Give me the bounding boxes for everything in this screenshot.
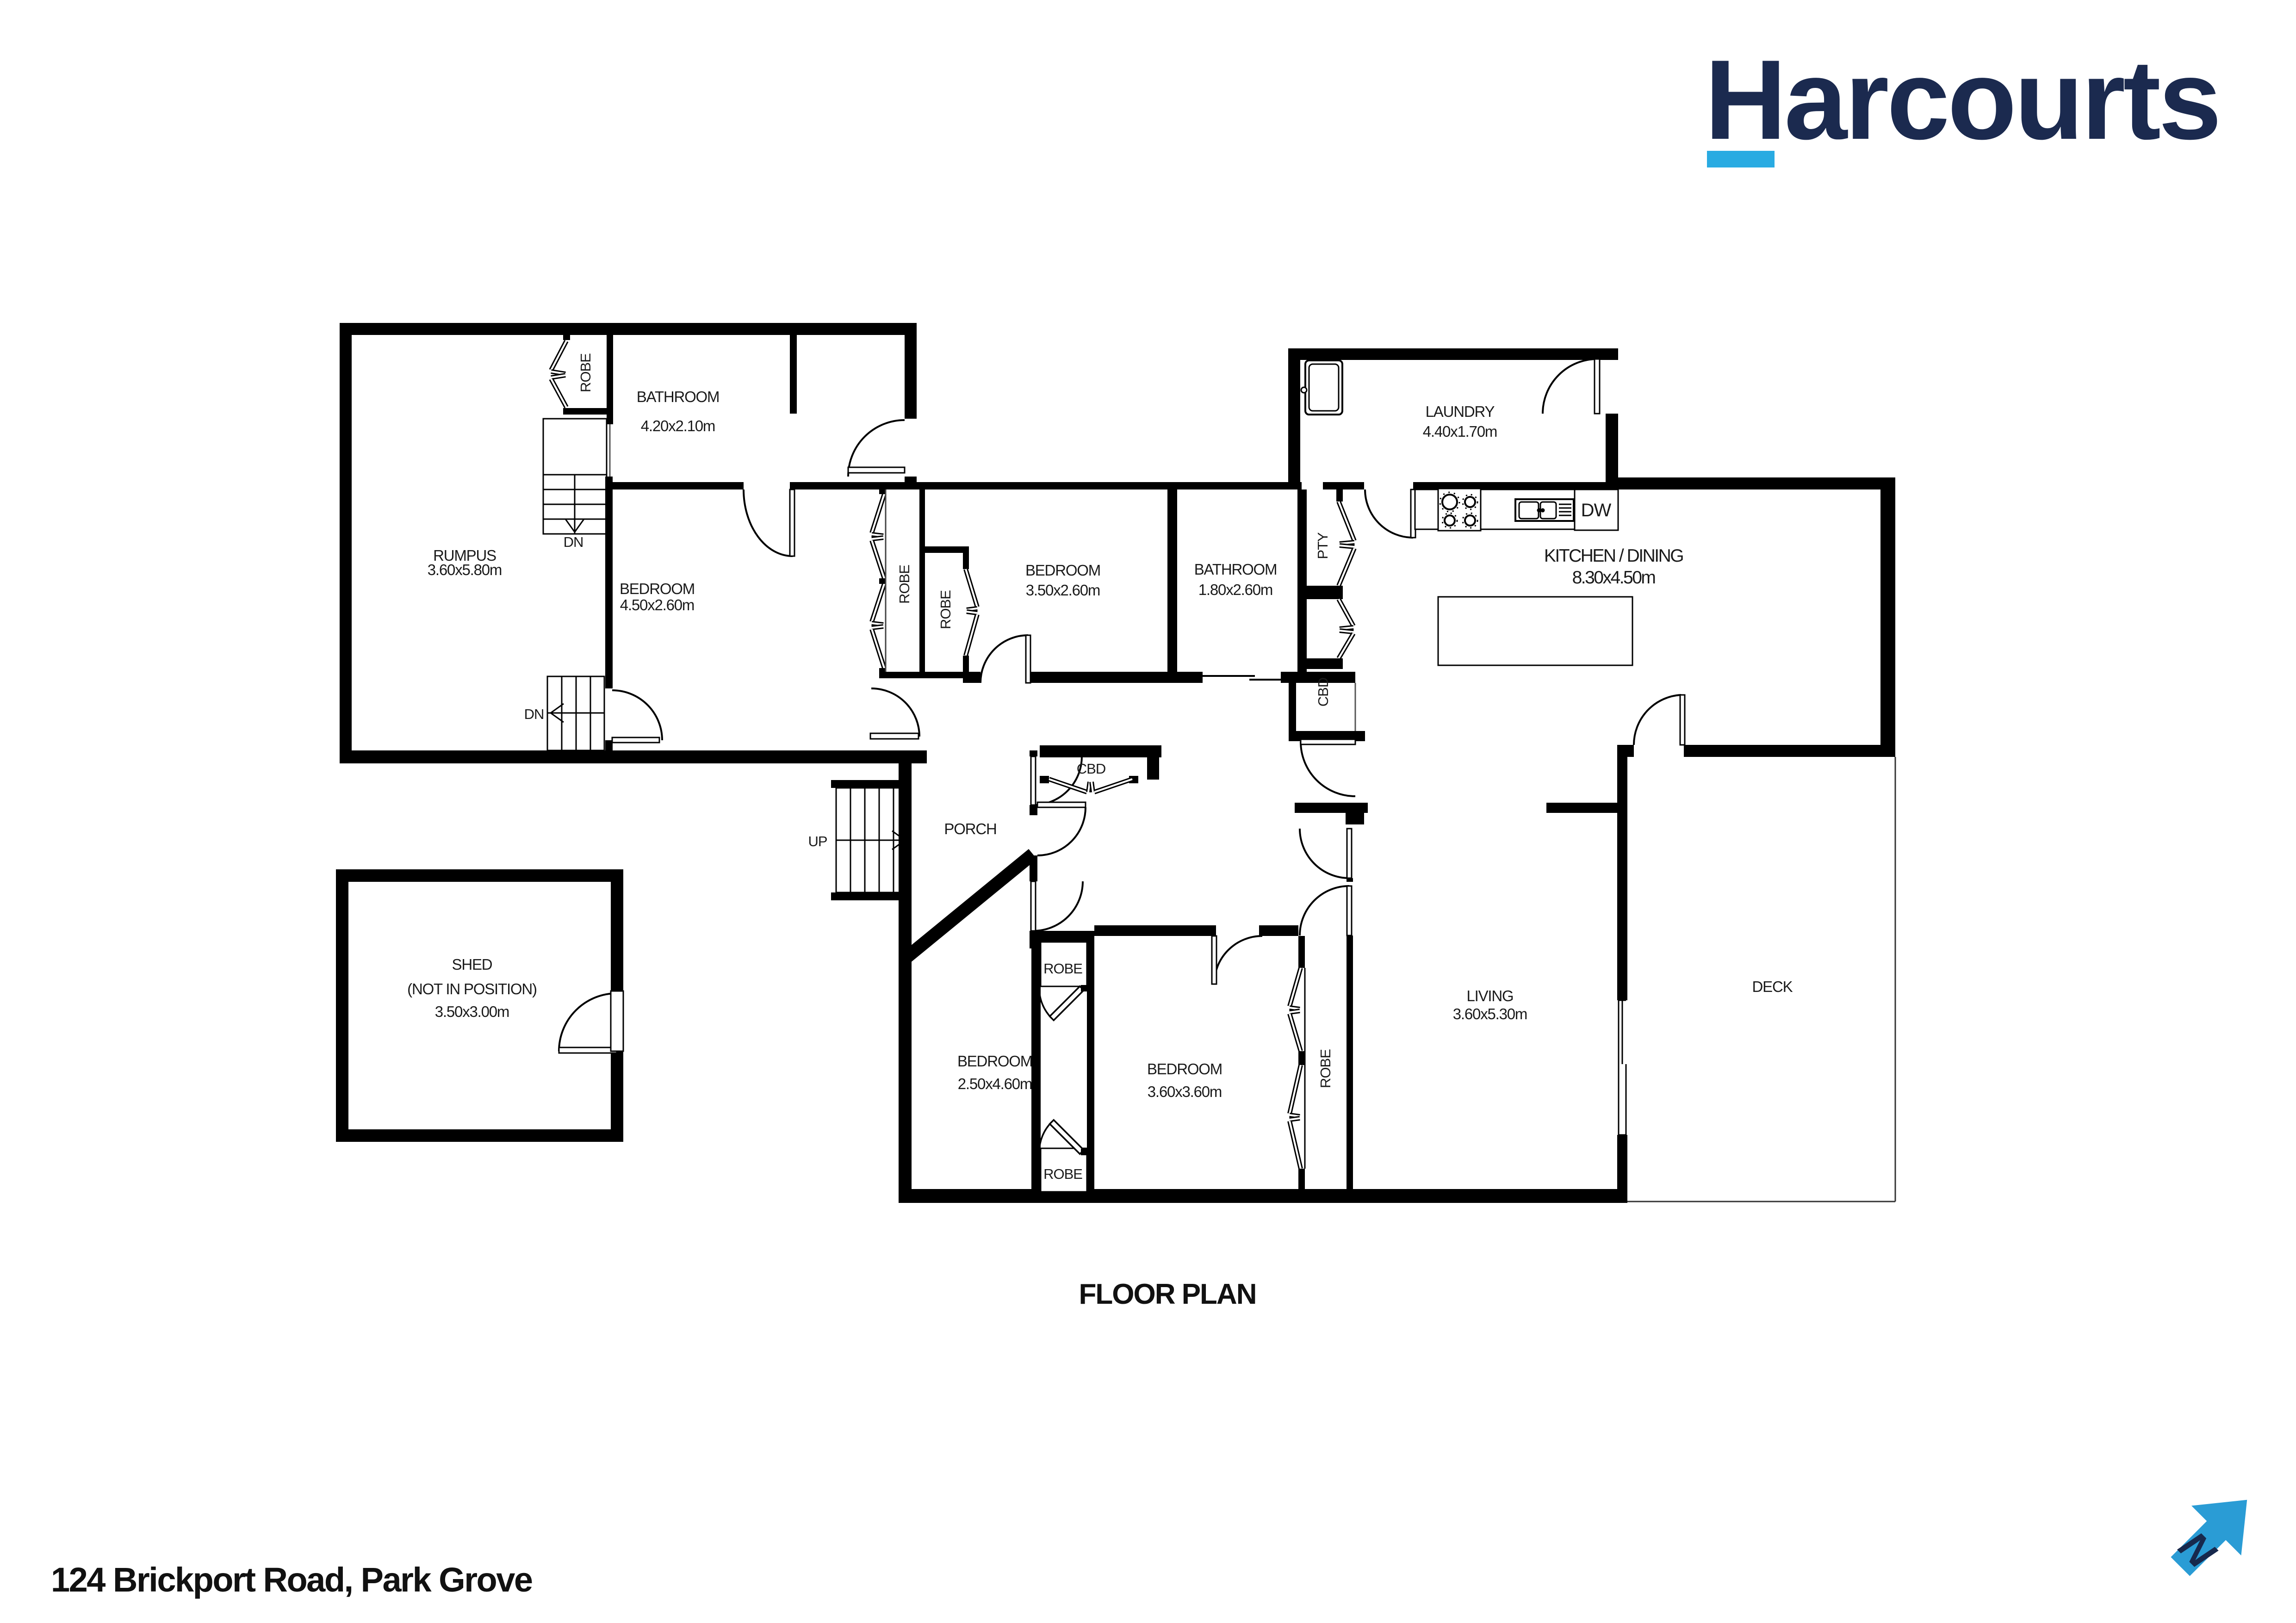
svg-text:3.50x3.00m: 3.50x3.00m bbox=[435, 1003, 509, 1020]
svg-text:1.80x2.60m: 1.80x2.60m bbox=[1198, 581, 1272, 598]
svg-text:4.50x2.60m: 4.50x2.60m bbox=[620, 596, 694, 613]
svg-text:(NOT IN POSITION): (NOT IN POSITION) bbox=[407, 980, 537, 997]
svg-text:KITCHEN / DINING: KITCHEN / DINING bbox=[1544, 546, 1683, 566]
svg-text:8.30x4.50m: 8.30x4.50m bbox=[1572, 568, 1655, 588]
svg-text:SHED: SHED bbox=[452, 956, 492, 973]
svg-text:ROBE: ROBE bbox=[1043, 960, 1082, 977]
svg-text:4.20x2.10m: 4.20x2.10m bbox=[641, 417, 715, 434]
svg-text:124 Brickport Road, Park Grove: 124 Brickport Road, Park Grove bbox=[51, 1561, 532, 1599]
svg-text:UP: UP bbox=[808, 833, 827, 849]
svg-text:3.60x5.80m: 3.60x5.80m bbox=[428, 561, 502, 578]
svg-text:CBD: CBD bbox=[1077, 761, 1105, 777]
svg-text:2.50x4.60m: 2.50x4.60m bbox=[958, 1075, 1032, 1092]
svg-text:ROBE: ROBE bbox=[937, 590, 954, 629]
svg-text:BATHROOM: BATHROOM bbox=[637, 388, 720, 405]
svg-text:3.60x3.60m: 3.60x3.60m bbox=[1148, 1083, 1222, 1100]
svg-text:BEDROOM: BEDROOM bbox=[1025, 562, 1100, 579]
svg-text:LAUNDRY: LAUNDRY bbox=[1426, 403, 1495, 420]
svg-text:3.50x2.60m: 3.50x2.60m bbox=[1026, 582, 1100, 599]
svg-text:PTY: PTY bbox=[1315, 533, 1331, 559]
svg-text:DW: DW bbox=[1581, 500, 1612, 520]
svg-text:ROBE: ROBE bbox=[896, 565, 912, 604]
svg-text:DECK: DECK bbox=[1752, 978, 1793, 995]
svg-text:DN: DN bbox=[564, 534, 583, 550]
svg-text:CBD: CBD bbox=[1315, 678, 1331, 706]
svg-text:4.40x1.70m: 4.40x1.70m bbox=[1423, 423, 1497, 440]
svg-text:PORCH: PORCH bbox=[944, 820, 996, 837]
svg-text:BATHROOM: BATHROOM bbox=[1194, 561, 1277, 578]
svg-text:BEDROOM: BEDROOM bbox=[957, 1053, 1032, 1070]
svg-text:ROBE: ROBE bbox=[1043, 1166, 1082, 1182]
svg-text:Harcourts: Harcourts bbox=[1705, 36, 2219, 163]
svg-text:FLOOR PLAN: FLOOR PLAN bbox=[1079, 1278, 1256, 1310]
svg-text:LIVING: LIVING bbox=[1466, 987, 1513, 1004]
svg-text:ROBE: ROBE bbox=[577, 353, 594, 392]
svg-text:DN: DN bbox=[524, 706, 544, 722]
svg-text:ROBE: ROBE bbox=[1317, 1049, 1334, 1088]
svg-text:BEDROOM: BEDROOM bbox=[1147, 1060, 1222, 1078]
svg-text:3.60x5.30m: 3.60x5.30m bbox=[1453, 1005, 1527, 1022]
svg-text:BEDROOM: BEDROOM bbox=[620, 580, 695, 597]
